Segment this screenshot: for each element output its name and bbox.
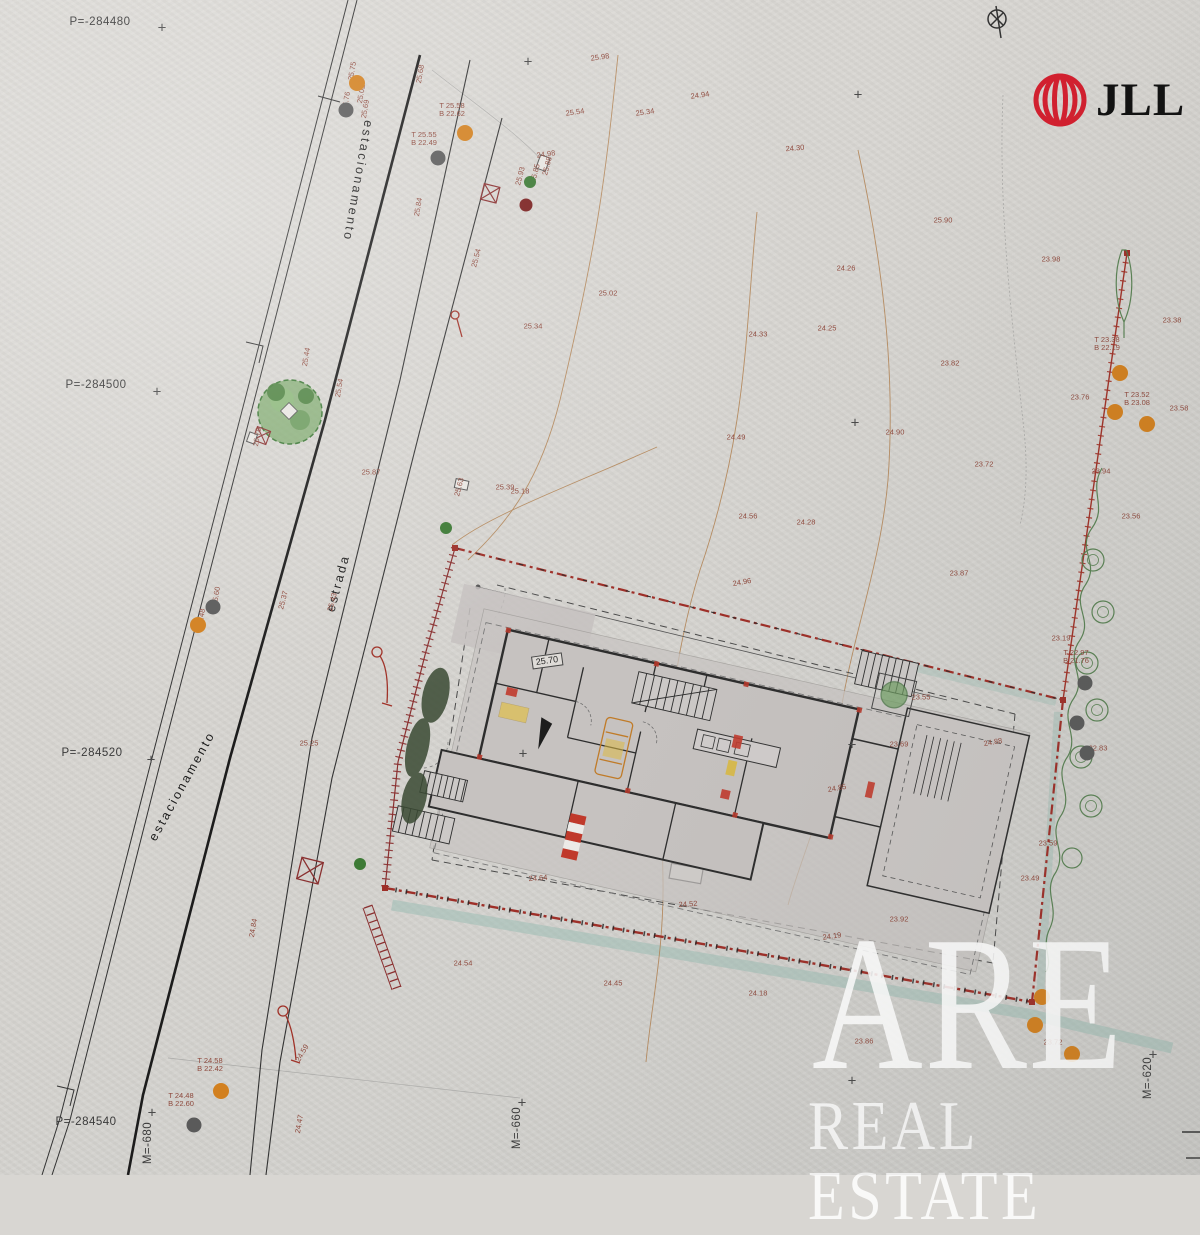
- elevation-label: 24.64: [528, 873, 547, 883]
- elevation-label: 24.49: [727, 433, 746, 442]
- elevation-label: 25.34: [524, 322, 543, 331]
- elevation-label: 25.87: [362, 468, 381, 477]
- survey-point-darkred: [520, 199, 533, 212]
- survey-point-orange: [213, 1083, 229, 1099]
- top-bottom-elevation-label: T 24.58B 22.42: [197, 1057, 223, 1074]
- hedge-and-trees: [1046, 250, 1132, 972]
- elevation-label: 23.69: [890, 740, 909, 749]
- grid-cross-mark: +: [147, 752, 156, 769]
- elevation-label: 23.56: [1122, 512, 1141, 521]
- site-plan-photo: P=-284480P=-284500P=-284520P=-284540M=-6…: [0, 0, 1200, 1175]
- elevation-label: 24.18: [749, 989, 768, 998]
- grid-coordinate-label: P=-284500: [65, 379, 126, 391]
- grid-cross-mark: +: [848, 737, 857, 754]
- survey-point-orange: [1107, 404, 1123, 420]
- elevation-label: 24.54: [454, 959, 473, 968]
- survey-point-gray: [1070, 716, 1085, 731]
- survey-point-gray: [1078, 676, 1093, 691]
- elevation-label: 24.26: [837, 264, 856, 273]
- elevation-label: 24.33: [749, 330, 768, 339]
- watermark-real-estate: REAL ESTATE: [808, 1092, 1145, 1232]
- top-bottom-elevation-label: T 25.55B 22.49: [411, 131, 437, 148]
- elevation-label: 23.38: [1163, 316, 1182, 325]
- elevation-label: 25.90: [934, 216, 953, 225]
- elevation-label: 24.56: [739, 512, 758, 521]
- elevation-label: 23.19: [1052, 634, 1071, 643]
- elevation-label: 24.52: [678, 899, 697, 909]
- top-bottom-elevation-label: T 24.48B 22.60: [168, 1092, 194, 1109]
- survey-point-green: [524, 176, 536, 188]
- elevation-label: 24.30: [785, 143, 804, 154]
- elevation-label: 23.94: [1092, 467, 1111, 476]
- elevation-label: 24.28: [797, 518, 816, 527]
- elevation-label: 23.82: [941, 359, 960, 368]
- grid-coordinate-label: M=-680: [142, 1122, 154, 1164]
- survey-point-orange: [1139, 416, 1155, 432]
- survey-point-gray: [431, 151, 446, 166]
- grid-cross-mark: +: [1149, 1047, 1158, 1064]
- grid-cross-mark: +: [524, 54, 533, 71]
- grid-coordinate-label: M=-660: [511, 1107, 523, 1149]
- survey-point-orange: [190, 617, 206, 633]
- survey-point-gray: [1080, 746, 1095, 761]
- jll-logo-text: JLL: [1096, 72, 1185, 128]
- grid-coordinate-label: P=-284540: [55, 1116, 116, 1128]
- survey-point-gray: [187, 1118, 202, 1133]
- grid-cross-mark: +: [148, 1105, 157, 1122]
- survey-point-green: [440, 522, 452, 534]
- top-bottom-elevation-label: T 25.58B 22.62: [439, 102, 465, 119]
- grid-coordinate-label: P=-284520: [61, 747, 122, 759]
- jll-logo: JLL: [1030, 68, 1190, 132]
- elevation-label: 23.87: [950, 569, 969, 578]
- top-bottom-elevation-label: T 22.97B 21.76: [1063, 649, 1089, 666]
- survey-point-green: [354, 858, 366, 870]
- grid-cross-mark: +: [519, 746, 528, 763]
- elevation-label: 24.25: [818, 324, 837, 333]
- elevation-label: 24.45: [604, 979, 623, 988]
- jll-logo-icon: [1030, 68, 1090, 132]
- survey-point-orange: [349, 75, 365, 91]
- elevation-label: 23.49: [1021, 874, 1040, 883]
- grid-cross-mark: +: [518, 1095, 527, 1112]
- grid-cross-mark: +: [153, 384, 162, 401]
- elevation-label: 23.72: [975, 460, 994, 469]
- watermark-are: ARE: [812, 908, 1124, 1100]
- road-lines: [42, 0, 502, 1175]
- elevation-label: 23.58: [1170, 404, 1189, 413]
- tree-symbol: [258, 380, 322, 444]
- elevation-label: 24.90: [886, 428, 905, 437]
- grid-coordinate-label: P=-284480: [69, 16, 130, 28]
- elevation-label: 25.18: [511, 487, 530, 496]
- top-bottom-elevation-label: T 23.38B 22.19: [1094, 336, 1120, 353]
- elevation-label: 23.59: [1039, 839, 1058, 848]
- grid-cross-mark: +: [851, 415, 860, 432]
- elevation-label: 23.98: [1042, 255, 1061, 264]
- survey-point-gray: [339, 103, 354, 118]
- grid-cross-mark: +: [854, 87, 863, 104]
- elevation-label: 25.02: [599, 289, 618, 298]
- survey-point-gray: [206, 600, 221, 615]
- steps-hatch: [363, 905, 401, 990]
- elevation-label: 23.55: [912, 693, 931, 702]
- top-bottom-elevation-label: T 23.52B 23.08: [1124, 391, 1150, 408]
- elevation-label: 23.76: [1071, 393, 1090, 402]
- grid-cross-mark: +: [158, 20, 167, 37]
- elevation-label: 25.25: [300, 739, 319, 748]
- survey-point-orange: [1112, 365, 1128, 381]
- survey-point-orange: [457, 125, 473, 141]
